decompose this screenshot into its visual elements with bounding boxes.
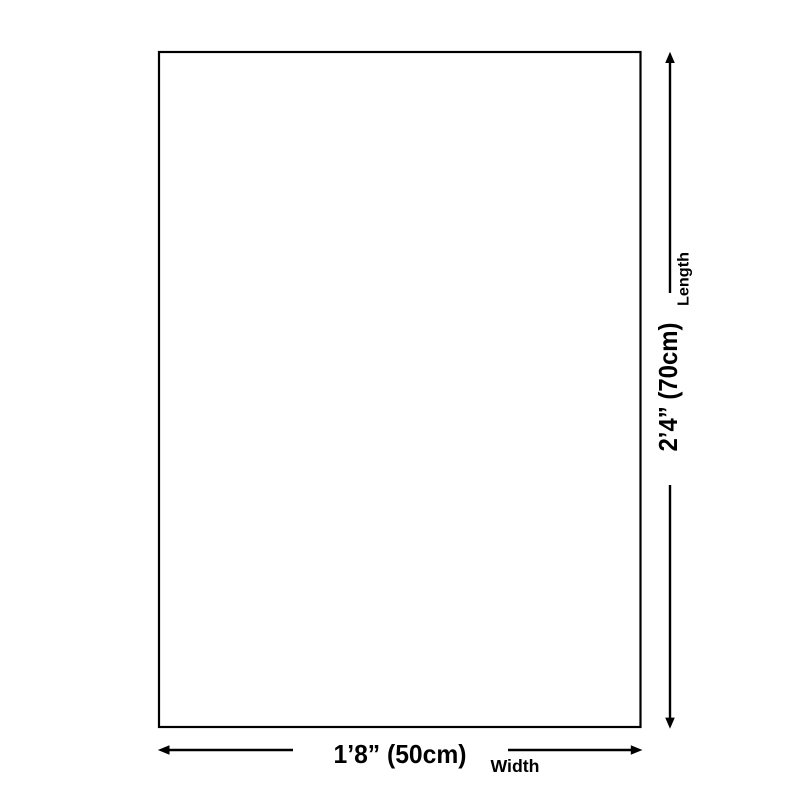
svg-text:2’4” (70cm): 2’4” (70cm) bbox=[653, 323, 683, 452]
svg-text:1’8” (50cm): 1’8” (50cm) bbox=[334, 739, 467, 769]
svg-text:Length: Length bbox=[676, 252, 693, 306]
svg-text:Width: Width bbox=[491, 756, 540, 776]
